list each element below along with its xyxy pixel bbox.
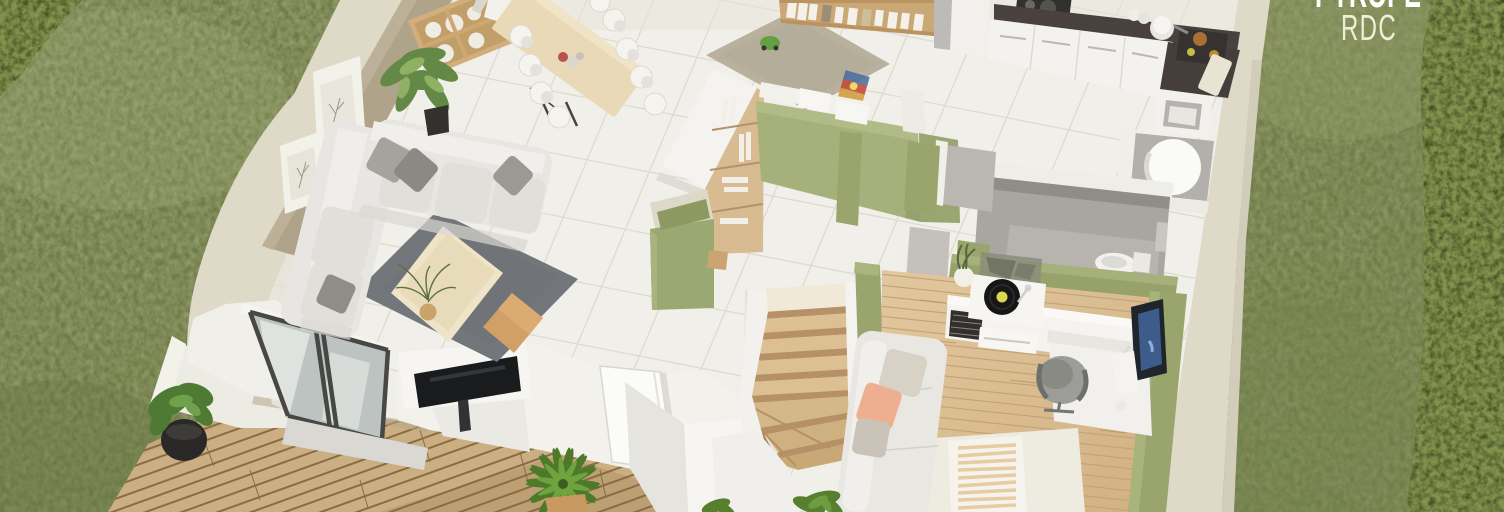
svg-text:RDC: RDC — [1341, 7, 1397, 48]
